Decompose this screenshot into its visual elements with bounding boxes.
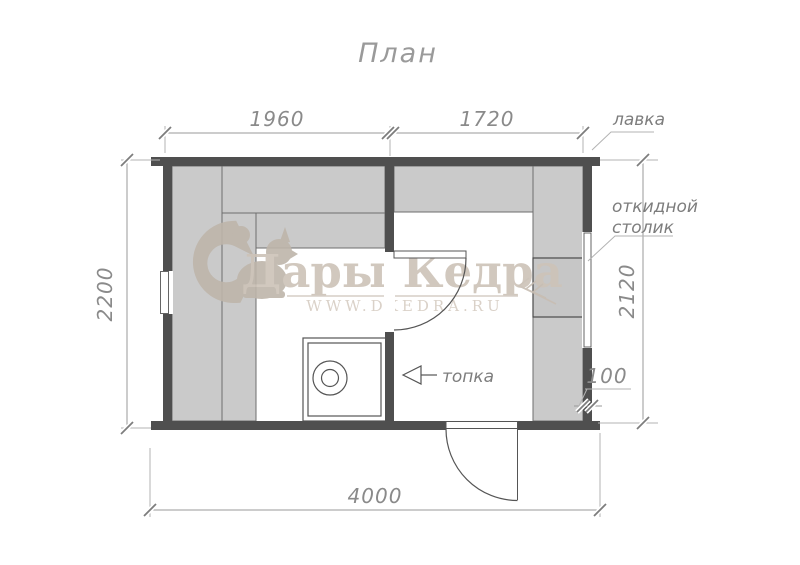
label-bench: лавка	[612, 110, 665, 130]
entry-door-swing-arc	[446, 429, 518, 501]
dim-top-left: 1960	[250, 107, 305, 131]
firebox-arrow-icon	[403, 366, 437, 384]
dim-top-right: 1720	[460, 107, 515, 131]
left-window	[161, 272, 169, 314]
bench-top-right-room	[394, 166, 533, 212]
label-folding-table-line1: откидной	[612, 197, 698, 217]
bottom-wall	[151, 421, 600, 430]
dim-wall-thickness: 100	[586, 364, 627, 388]
bench-top-tier-upper-left-room	[222, 166, 385, 213]
floor-plan-page: Дары Кедра WWW.DKEDRA.RU	[0, 0, 800, 565]
entry-door	[446, 422, 518, 501]
dim-bottom: 4000	[348, 484, 403, 508]
page-title: План	[358, 38, 438, 69]
label-folding-table-line2: столик	[612, 218, 675, 238]
watermark-site: WWW.DKEDRA.RU	[306, 297, 503, 315]
entry-door-leaf-closed	[446, 422, 518, 429]
partition-door-cutout	[384, 252, 395, 332]
dim-right: 2120	[615, 264, 639, 319]
stove-inner	[308, 343, 381, 416]
top-wall	[151, 157, 600, 166]
right-opening-frame	[584, 233, 591, 347]
stove	[303, 338, 386, 421]
partition-door-leaf	[394, 251, 466, 258]
label-firebox: топка	[442, 367, 494, 387]
floor-plan-drawing: Дары Кедра WWW.DKEDRA.RU	[0, 0, 800, 565]
dim-left: 2200	[93, 267, 117, 322]
